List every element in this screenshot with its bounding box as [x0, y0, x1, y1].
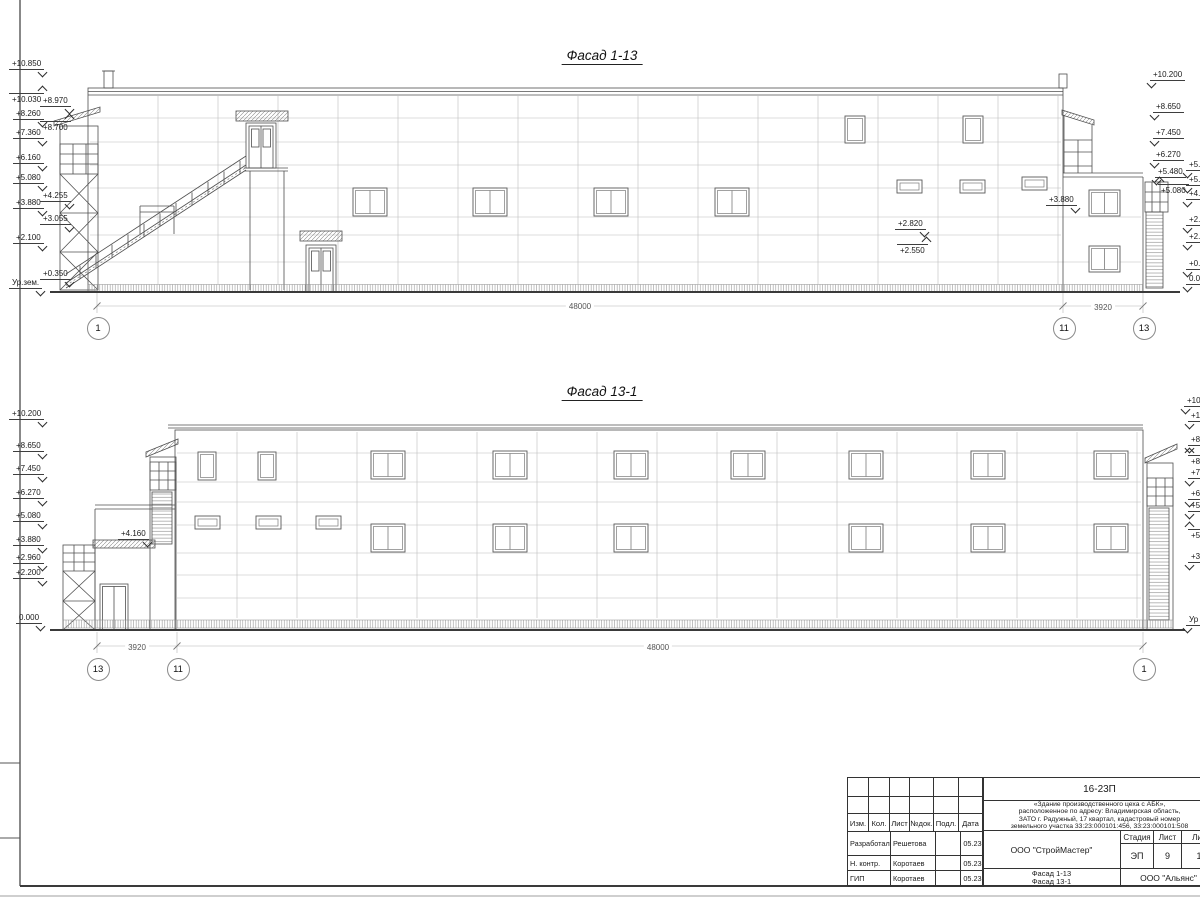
elevation-mark: +5.: [1186, 160, 1200, 171]
stage-label: Стадия: [1121, 831, 1154, 844]
revision-column-header: Кол.: [869, 778, 890, 831]
elevation-mark: +2.820: [895, 219, 926, 230]
elevation-mark: 0.0: [1186, 274, 1200, 285]
axis-bubble: 11: [167, 658, 190, 681]
facade-1-13-drawing: [50, 71, 1180, 313]
elevation-mark: +4.160: [118, 529, 149, 540]
dimension-label: 48000: [566, 302, 594, 311]
sheet-value: 9: [1154, 844, 1182, 869]
dimension-label: 3920: [125, 643, 149, 652]
title-block: Изм.Кол.Лист№док.Подл.Дата Разработал Ре…: [847, 777, 1200, 886]
row-role: Н. контр.: [848, 856, 891, 870]
drawing-title-line: Фасад 13-1: [1032, 878, 1071, 886]
dimension-label: 48000: [644, 643, 672, 652]
description-line: «Здание производственного цеха с АБК»,: [983, 801, 1200, 808]
description-line: земельного участка 33:23:000101:456, 33:…: [983, 823, 1200, 830]
row-date: 05.23: [961, 856, 983, 870]
elevation-mark: +6.270: [13, 488, 44, 499]
elevation-mark: +0.: [1186, 259, 1200, 270]
elevation-mark: +5.080: [13, 173, 44, 184]
organization: ООО "СтройМастер": [983, 831, 1121, 869]
divider: [848, 796, 983, 797]
row-name: Решетова: [891, 831, 936, 855]
organization-2: ООО "Альянс": [1121, 869, 1200, 887]
facade-bottom-title: Фасад 13-1: [562, 384, 643, 401]
elevation-mark: +8: [1188, 435, 1200, 446]
elevation-mark: +8.970: [40, 96, 71, 107]
signature-row: Н. контр. Коротаев 05.23: [848, 856, 983, 871]
elevation-mark: +10: [1184, 396, 1200, 407]
project-description: «Здание производственного цеха с АБК»,ра…: [983, 801, 1200, 831]
elevation-mark: +3.880: [13, 535, 44, 546]
elevation-mark: +5.: [1186, 175, 1200, 186]
dimension-label: 3920: [1091, 303, 1115, 312]
facade-top-title: Фасад 1-13: [562, 48, 643, 65]
elevation-mark: +8: [1188, 455, 1200, 466]
row-name: Коротаев: [891, 871, 936, 886]
revision-column-header: Дата: [959, 778, 983, 831]
elevation-mark: +3.880: [1046, 195, 1077, 206]
elevation-mark: +10.200: [1150, 70, 1185, 81]
elevation-mark: +10.200: [9, 409, 44, 420]
elevation-mark: +2.: [1186, 232, 1200, 243]
row-signature: [936, 831, 961, 855]
elevation-mark: +7.450: [1153, 128, 1184, 139]
elevation-mark: +6: [1188, 489, 1200, 500]
elevation-mark: +2.200: [13, 568, 44, 579]
elevation-mark: +2.100: [13, 233, 44, 244]
row-name: Коротаев: [891, 856, 936, 870]
sheets-label: Лис: [1182, 831, 1200, 844]
elevation-mark: +8.260: [13, 109, 44, 120]
row-date: 05.23: [961, 871, 983, 886]
elevation-mark: +2.550: [897, 244, 928, 255]
elevation-mark: +7.450: [13, 464, 44, 475]
elevation-mark: +3: [1188, 552, 1200, 563]
elevation-mark: +7: [1188, 468, 1200, 479]
elevation-mark: +6.270: [1153, 150, 1184, 161]
elevation-mark: +3.055: [40, 214, 71, 225]
row-role: ГИП: [848, 871, 891, 886]
drawing-sheet: { "sheet": { "colors": {"line": "#4a4a4a…: [0, 0, 1200, 900]
row-signature: [936, 856, 961, 870]
elevation-mark: 0.000: [16, 613, 42, 624]
elevation-mark: +6.160: [13, 153, 44, 164]
stage-value: ЭП: [1121, 844, 1154, 869]
revision-column-header: №док.: [910, 778, 934, 831]
elevation-mark: +2.: [1186, 215, 1200, 226]
axis-bubble: 1: [1133, 658, 1156, 681]
description-line: расположенное по адресу: Владимирская об…: [983, 808, 1200, 815]
elevation-mark: +4.: [1186, 189, 1200, 200]
signature-row: ГИП Коротаев 05.23: [848, 871, 983, 887]
elevation-mark: +8.650: [13, 441, 44, 452]
row-role: Разработал: [848, 831, 891, 855]
elevation-mark: +10.850: [9, 59, 44, 70]
axis-bubble: 11: [1053, 317, 1076, 340]
axis-bubble: 13: [87, 658, 110, 681]
elevation-mark: +2.960: [13, 553, 44, 564]
description-line: ЗАТО г. Радужный, 17 квартал, кадастровы…: [983, 816, 1200, 823]
elevation-mark: +5.080: [13, 511, 44, 522]
elevation-mark: +8.700: [40, 121, 71, 132]
elevation-mark: +10.030: [9, 93, 44, 104]
sheets-value: 1: [1182, 844, 1200, 869]
elevation-mark: +5: [1188, 529, 1200, 540]
elevation-mark: +8.650: [1153, 102, 1184, 113]
facade-13-1-drawing: [50, 425, 1185, 653]
elevation-mark: +4.255: [40, 191, 71, 202]
elevation-mark: +0.350: [40, 269, 71, 280]
axis-bubble: 13: [1133, 317, 1156, 340]
revision-column-header: Лист: [890, 778, 910, 831]
elevation-mark: +5: [1188, 501, 1200, 512]
external-stair: [66, 156, 288, 290]
project-code: 16-23П: [983, 778, 1200, 801]
sheet-frame: [0, 0, 1200, 896]
row-signature: [936, 871, 961, 886]
drawing-linework: [0, 0, 1200, 900]
elevation-mark: Ур.зем.: [9, 278, 42, 289]
drawing-title: Фасад 1-13Фасад 13-1: [983, 869, 1121, 887]
revision-table: Изм.Кол.Лист№док.Подл.Дата: [848, 778, 983, 831]
divider: [848, 813, 983, 814]
elevation-mark: +1: [1188, 411, 1200, 422]
elevation-mark: Ур: [1186, 615, 1200, 626]
signature-row: Разработал Решетова 05.23: [848, 831, 983, 856]
axis-bubble: 1: [87, 317, 110, 340]
row-date: 05.23: [961, 831, 983, 855]
sheet-label: Лист: [1154, 831, 1182, 844]
revision-column-header: Изм.: [848, 778, 869, 831]
revision-column-header: Подл.: [934, 778, 959, 831]
